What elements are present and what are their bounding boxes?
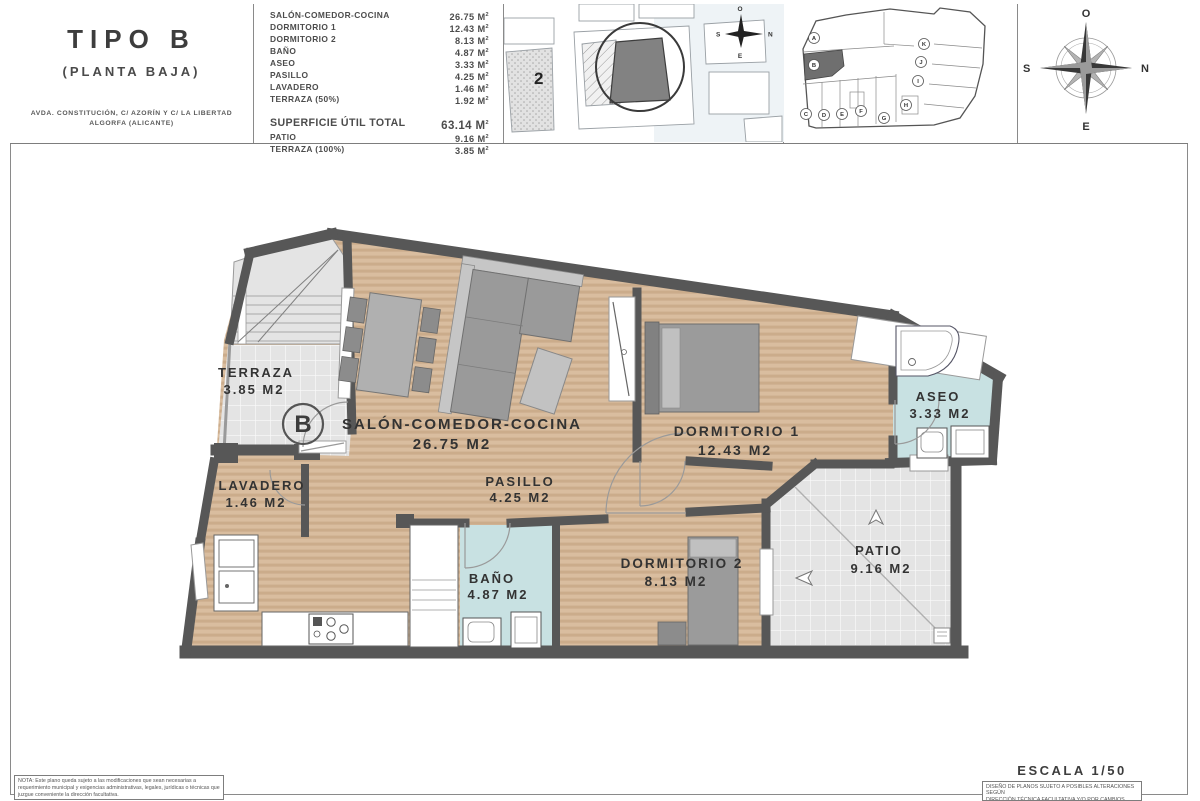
label-patio: PATIO (855, 543, 903, 558)
site-map-drawing: 2 O N E S (504, 4, 784, 142)
cooktop-icon (309, 614, 353, 644)
compass-label-bottom: E (1082, 121, 1089, 133)
unit-circle-g: G (879, 113, 890, 124)
svg-text:O: O (737, 6, 742, 13)
compass-cell: O N E S (1018, 4, 1188, 143)
area-aseo: 3.33 M2 (910, 406, 971, 421)
compass-label-left: S (1023, 63, 1030, 75)
label-dormitorio-1: DORMITORIO 1 (674, 423, 800, 439)
footer-note-box: NOTA: Este plano queda sujeto a las modi… (14, 775, 224, 800)
project-address: AVDA. CONSTITUCIÓN, C/ AZORÍN Y C/ LA LI… (10, 109, 253, 128)
unit-circle-f: F (856, 106, 867, 117)
area-row: BAÑO4.87 M2 (270, 47, 489, 59)
disclaimer-box: DISEÑO DE PLANOS SUJETO A POSIBLES ALTER… (982, 781, 1142, 801)
drain-icon (934, 628, 950, 643)
unit-circle-a: A (809, 33, 820, 44)
unit-circle-d: D (819, 110, 830, 121)
area-row: DORMITORIO 28.13 M2 (270, 35, 489, 47)
compass-label-right: N (1141, 63, 1149, 75)
washbasin-icon (511, 612, 541, 648)
address-line-1: AVDA. CONSTITUCIÓN, C/ AZORÍN Y C/ LA LI… (10, 109, 253, 119)
label-aseo: ASEO (916, 389, 961, 404)
dorm2-window (760, 549, 773, 615)
svg-text:J: J (919, 60, 922, 66)
block-plan-drawing: A B C D E F G H I J K (784, 4, 1018, 142)
unit-circle-b: B (809, 60, 820, 71)
toilet-icon (917, 428, 947, 458)
area-dormitorio-1: 12.43 M2 (698, 442, 772, 458)
nightstand (658, 622, 686, 645)
unit-circle-e: E (837, 109, 848, 120)
svg-text:E: E (840, 112, 844, 118)
disclaimer-line-2: DIRECCIÓN TÉCNICA FACULTATIVA Y/O POR CA… (986, 797, 1138, 801)
unit-letter: B (294, 411, 311, 438)
svg-text:D: D (822, 113, 826, 119)
area-patio: 9.16 M2 (851, 561, 912, 576)
block-key-plan: A B C D E F G H I J K (784, 4, 1018, 143)
svg-text:N: N (768, 32, 773, 39)
title-bar: TIPO B (PLANTA BAJA) AVDA. CONSTITUCIÓN,… (10, 4, 1188, 144)
map-highlighted-plot (610, 38, 670, 103)
bed-dorm1 (645, 322, 759, 414)
unit-circle-j: J (916, 57, 927, 68)
area-salon: 26.75 M2 (413, 436, 492, 453)
areas-table: SALÓN-COMEDOR-COCINA26.75 M2 DORMITORIO … (254, 4, 504, 143)
address-line-2: ALGORFA (ALICANTE) (10, 119, 253, 129)
area-bano: 4.87 M2 (468, 587, 529, 602)
area-row: PATIO9.16 M2 (270, 133, 489, 145)
label-lavadero: LAVADERO (218, 478, 305, 493)
area-terraza: 3.85 M2 (224, 382, 285, 397)
area-row: LAVADERO1.46 M2 (270, 83, 489, 95)
washbasin-icon (951, 426, 989, 458)
title-block: TIPO B (PLANTA BAJA) AVDA. CONSTITUCIÓN,… (10, 4, 254, 143)
svg-text:H: H (904, 103, 908, 109)
label-terraza: TERRAZA (218, 365, 294, 380)
site-location-map: 2 O N E S (504, 4, 784, 143)
map-plot-number: 2 (534, 69, 543, 88)
unit-circle-i: I (913, 76, 924, 87)
compass-label-top: O (1082, 8, 1091, 20)
total-area-row: SUPERFICIE ÚTIL TOTAL63.14 M2 (270, 117, 489, 133)
area-lavadero: 1.46 M2 (226, 495, 287, 510)
svg-text:S: S (716, 32, 721, 39)
svg-text:F: F (859, 109, 863, 115)
area-row: TERRAZA (50%)1.92 M2 (270, 95, 489, 107)
tv-unit (609, 297, 635, 401)
area-dormitorio-2: 8.13 M2 (645, 574, 708, 589)
unit-circle-k: K (919, 39, 930, 50)
label-bano: BAÑO (469, 571, 515, 586)
disclaimer-line-1: DISEÑO DE PLANOS SUJETO A POSIBLES ALTER… (986, 784, 1138, 797)
label-pasillo: PASILLO (485, 474, 554, 489)
unit-circle-c: C (801, 109, 812, 120)
plan-type-title: TIPO B (10, 24, 253, 55)
compass-rose-icon: O N E S (1018, 4, 1186, 142)
label-dormitorio-2: DORMITORIO 2 (621, 556, 744, 571)
svg-text:E: E (738, 53, 743, 60)
pantry-column (410, 525, 458, 647)
area-pasillo: 4.25 M2 (490, 490, 551, 505)
compass-cardinal-points (1040, 22, 1132, 114)
scale-label: ESCALA 1/50 (1012, 763, 1132, 778)
terraza-tiles (218, 345, 351, 456)
area-row: TERRAZA (100%)3.85 M2 (270, 145, 489, 157)
plan-floor-subtitle: (PLANTA BAJA) (10, 64, 253, 79)
svg-text:B: B (812, 63, 816, 69)
svg-text:G: G (882, 116, 887, 122)
label-salon: SALÓN-COMEDOR-COCINA (342, 415, 582, 433)
unit-circle-h: H (901, 100, 912, 111)
